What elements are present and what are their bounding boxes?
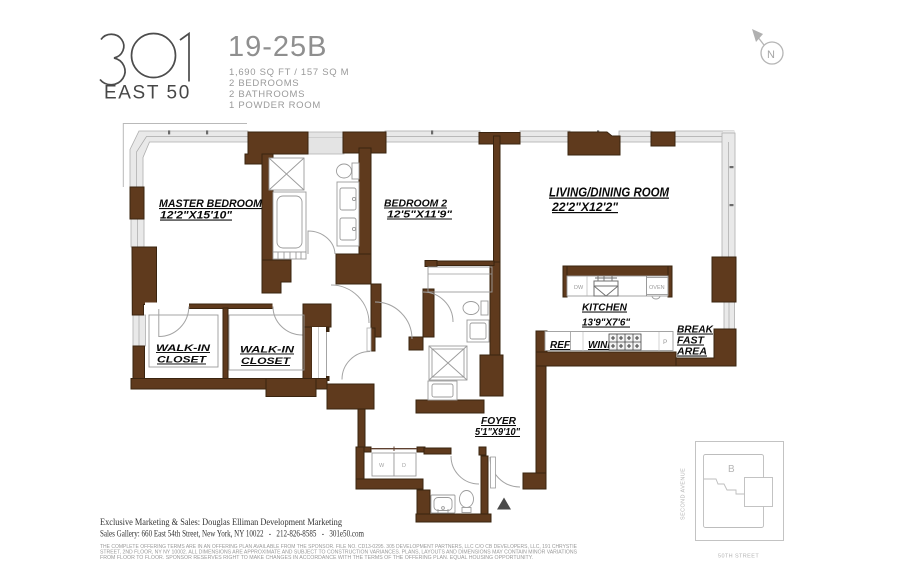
svg-text:OVEN: OVEN <box>649 285 665 291</box>
svg-text:2 BATHROOMS: 2 BATHROOMS <box>229 89 305 100</box>
svg-text:W: W <box>379 463 385 469</box>
svg-text:AREA: AREA <box>676 346 707 358</box>
svg-text:12'5"X11'9": 12'5"X11'9" <box>387 210 452 221</box>
svg-text:19-25B: 19-25B <box>228 31 328 63</box>
svg-text:N: N <box>767 49 775 61</box>
svg-text:WALK-IN: WALK-IN <box>156 343 212 354</box>
svg-text:P: P <box>663 339 667 346</box>
svg-text:Exclusive Marketing & Sales: D: Exclusive Marketing & Sales: Douglas Ell… <box>100 517 342 527</box>
svg-text:13'9"X7'6": 13'9"X7'6" <box>582 317 631 329</box>
svg-text:CLOSET: CLOSET <box>157 355 208 366</box>
svg-text:50TH STREET: 50TH STREET <box>718 554 759 560</box>
svg-text:1 POWDER ROOM: 1 POWDER ROOM <box>229 100 321 111</box>
svg-text:EAST 50: EAST 50 <box>104 83 191 104</box>
svg-text:22'2"X12'2": 22'2"X12'2" <box>551 200 618 214</box>
svg-text:LIVING/DINING ROOM: LIVING/DINING ROOM <box>549 186 670 200</box>
svg-text:MASTER BEDROOM: MASTER BEDROOM <box>159 198 263 210</box>
svg-text:SECOND AVENUE: SECOND AVENUE <box>681 468 687 520</box>
svg-text:FOYER: FOYER <box>481 415 516 427</box>
svg-text:2 BEDROOMS: 2 BEDROOMS <box>229 78 299 89</box>
svg-text:WALK-IN: WALK-IN <box>240 345 296 356</box>
svg-text:B: B <box>728 464 735 475</box>
svg-text:KITCHEN: KITCHEN <box>582 302 627 314</box>
svg-text:1,690 SQ FT / 157 SQ M: 1,690 SQ FT / 157 SQ M <box>229 67 349 78</box>
svg-text:Sales Gallery: 660 East 54th S: Sales Gallery: 660 East 54th Street, New… <box>100 529 364 539</box>
svg-text:12'2"X15'10": 12'2"X15'10" <box>160 210 233 222</box>
svg-text:D: D <box>402 463 406 469</box>
svg-text:REF: REF <box>550 340 571 351</box>
svg-text:BEDROOM 2: BEDROOM 2 <box>384 199 447 210</box>
svg-text:CLOSET: CLOSET <box>241 356 292 367</box>
svg-text:5'1"X9'10": 5'1"X9'10" <box>475 427 520 438</box>
svg-text:FROM FLOOR TO FLOOR. SPONSOR R: FROM FLOOR TO FLOOR. SPONSOR RESERVES RI… <box>100 555 533 561</box>
svg-text:DW: DW <box>574 285 584 291</box>
